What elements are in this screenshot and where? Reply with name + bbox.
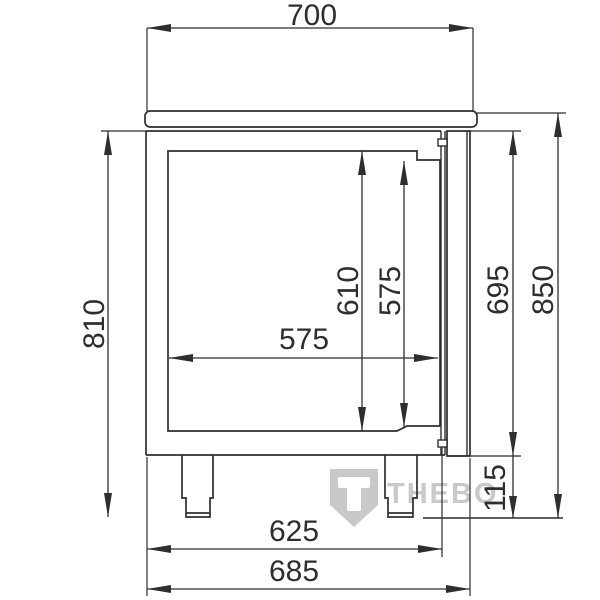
dim-label-575-horizontal: 575 — [279, 323, 329, 356]
arrow-down — [509, 432, 517, 456]
dim-label-115: 115 — [479, 464, 512, 512]
dimension-door-height: 695 — [447, 131, 521, 456]
arrow-up — [358, 151, 366, 175]
watermark-shield-letter-stem — [347, 477, 361, 511]
dim-label-700: 700 — [287, 0, 337, 32]
hinge-bottom — [438, 440, 447, 447]
arrow-down — [104, 493, 112, 517]
dimension-body-height: 810 — [78, 131, 146, 517]
arrow-up — [509, 131, 517, 155]
dim-label-695: 695 — [482, 265, 515, 315]
dimension-drawing: THEBO 700 810 — [0, 0, 600, 600]
dimension-interior-depth: 575 — [169, 323, 438, 362]
arrow-down — [400, 403, 408, 427]
dimension-interior-height-rear: 610 — [332, 151, 366, 431]
body-front-panel — [441, 131, 445, 455]
worktop-outline — [145, 111, 477, 127]
arrow-right — [418, 545, 442, 553]
arrow-left — [169, 354, 193, 362]
leg-rear — [182, 455, 213, 517]
ext-line — [147, 28, 473, 111]
hinge-top — [438, 139, 447, 146]
arrow-right — [449, 24, 473, 32]
dim-label-810: 810 — [78, 299, 111, 349]
technical-drawing-canvas: THEBO 700 810 — [0, 0, 600, 600]
arrow-left — [147, 545, 171, 553]
arrow-left — [147, 24, 171, 32]
arrow-up — [554, 113, 562, 137]
arrow-up — [104, 131, 112, 155]
dim-label-575-vertical: 575 — [374, 266, 407, 316]
dim-label-625: 625 — [269, 515, 319, 548]
arrow-up — [400, 161, 408, 185]
dim-label-850: 850 — [527, 265, 560, 315]
dim-label-610: 610 — [332, 266, 365, 316]
arrow-down — [554, 494, 562, 518]
dimension-worktop-depth: 700 — [147, 0, 473, 111]
dimension-plinth-height: 115 — [479, 456, 517, 518]
arrow-left — [147, 585, 171, 593]
arrow-down — [358, 407, 366, 431]
arrow-right — [414, 354, 438, 362]
dim-label-685: 685 — [269, 555, 319, 588]
arrow-right — [446, 585, 470, 593]
dimension-interior-height-front: 575 — [374, 161, 408, 427]
